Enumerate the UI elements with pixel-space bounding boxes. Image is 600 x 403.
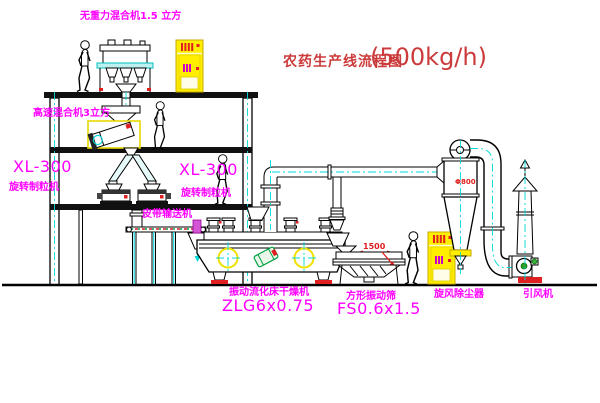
diagram-title-capacity: (500kg/h) xyxy=(370,45,487,69)
label-belt-conveyor: 皮带输送机 xyxy=(142,210,192,220)
label-fan: 引风机 xyxy=(523,290,553,300)
label-granulator-left-name: 旋转制粒机 xyxy=(9,183,59,193)
label-granulator-center-model: XL-300 xyxy=(179,162,238,178)
y-splitter-pipes xyxy=(109,155,156,184)
control-cabinet-ground xyxy=(428,232,455,284)
control-cabinet-top xyxy=(176,40,203,92)
dimension-cyclone-diameter: Φ800 xyxy=(455,179,476,186)
exhaust-duct xyxy=(247,160,448,232)
worker-figure-4 xyxy=(405,232,418,284)
high-speed-mixer xyxy=(88,92,140,155)
label-granulator-left-model: XL-300 xyxy=(13,159,72,175)
label-dryer-model: ZLG6x0.75 xyxy=(222,298,314,314)
belt-conveyor xyxy=(126,227,207,284)
label-cyclone: 旋风除尘器 xyxy=(434,290,484,300)
floor-slab-2 xyxy=(50,147,252,153)
worker-figure-1 xyxy=(77,41,90,92)
screen-feed-chute xyxy=(327,177,349,246)
granulator-right-machine xyxy=(136,184,171,205)
wall-segment xyxy=(79,210,83,284)
worker-figure-2 xyxy=(153,102,165,150)
flow-diagram: 农药生产线流程图 (500kg/h) 无重力混合机1.5 立方 高速混合机3立方… xyxy=(0,0,600,403)
label-granulator-center-name: 旋转制粒机 xyxy=(181,189,231,199)
granulator-left-machine xyxy=(97,184,132,205)
induced-draft-fan xyxy=(512,256,542,283)
vibrating-screen xyxy=(333,246,405,284)
floor-slab-top xyxy=(44,92,258,98)
label-high-speed-mixer: 高速混合机3立方 xyxy=(33,109,110,119)
label-gravity-mixer: 无重力混合机1.5 立方 xyxy=(80,12,181,22)
label-screen-model: FS0.6x1.5 xyxy=(337,301,421,317)
dimension-screen-length: 1500 xyxy=(363,243,385,251)
dryer-motor xyxy=(193,220,201,233)
gravity-free-mixer xyxy=(97,40,153,98)
conveyor-legs xyxy=(133,232,176,284)
